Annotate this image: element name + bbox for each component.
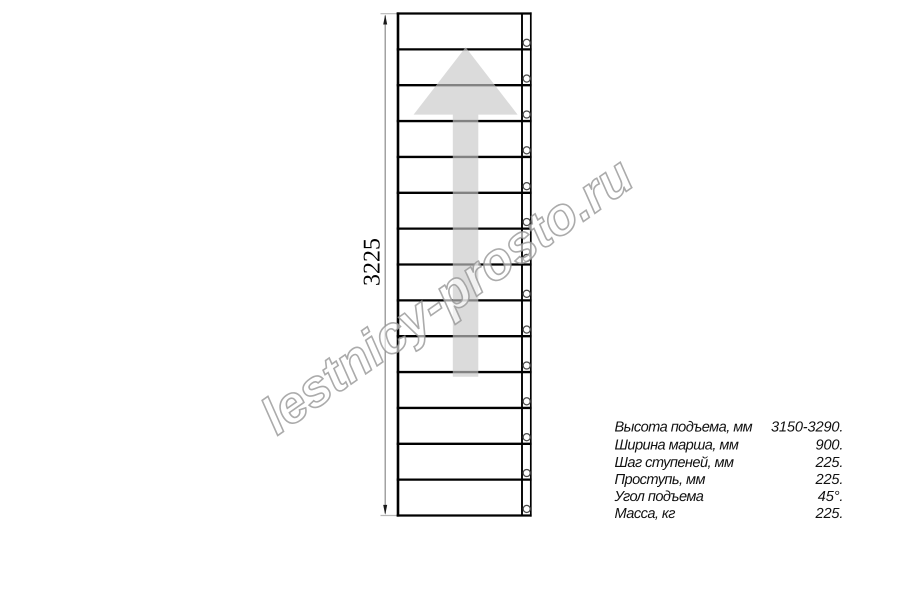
svg-text:Высота подъема, мм: Высота подъема, мм (615, 420, 753, 436)
svg-text:45°.: 45°. (818, 489, 844, 505)
svg-text:Ширина марша, мм: Ширина марша, мм (615, 438, 739, 454)
svg-text:225.: 225. (814, 455, 843, 471)
svg-text:900.: 900. (815, 438, 843, 454)
svg-text:3225: 3225 (360, 238, 386, 286)
svg-text:225.: 225. (814, 472, 843, 488)
svg-text:Проступь, мм: Проступь, мм (615, 472, 706, 488)
svg-text:225.: 225. (814, 506, 843, 522)
svg-text:Масса, кг: Масса, кг (615, 506, 676, 522)
svg-text:Шаг ступеней, мм: Шаг ступеней, мм (615, 455, 735, 471)
svg-text:3150-3290.: 3150-3290. (771, 420, 843, 436)
svg-text:Угол подъема: Угол подъема (614, 489, 704, 505)
